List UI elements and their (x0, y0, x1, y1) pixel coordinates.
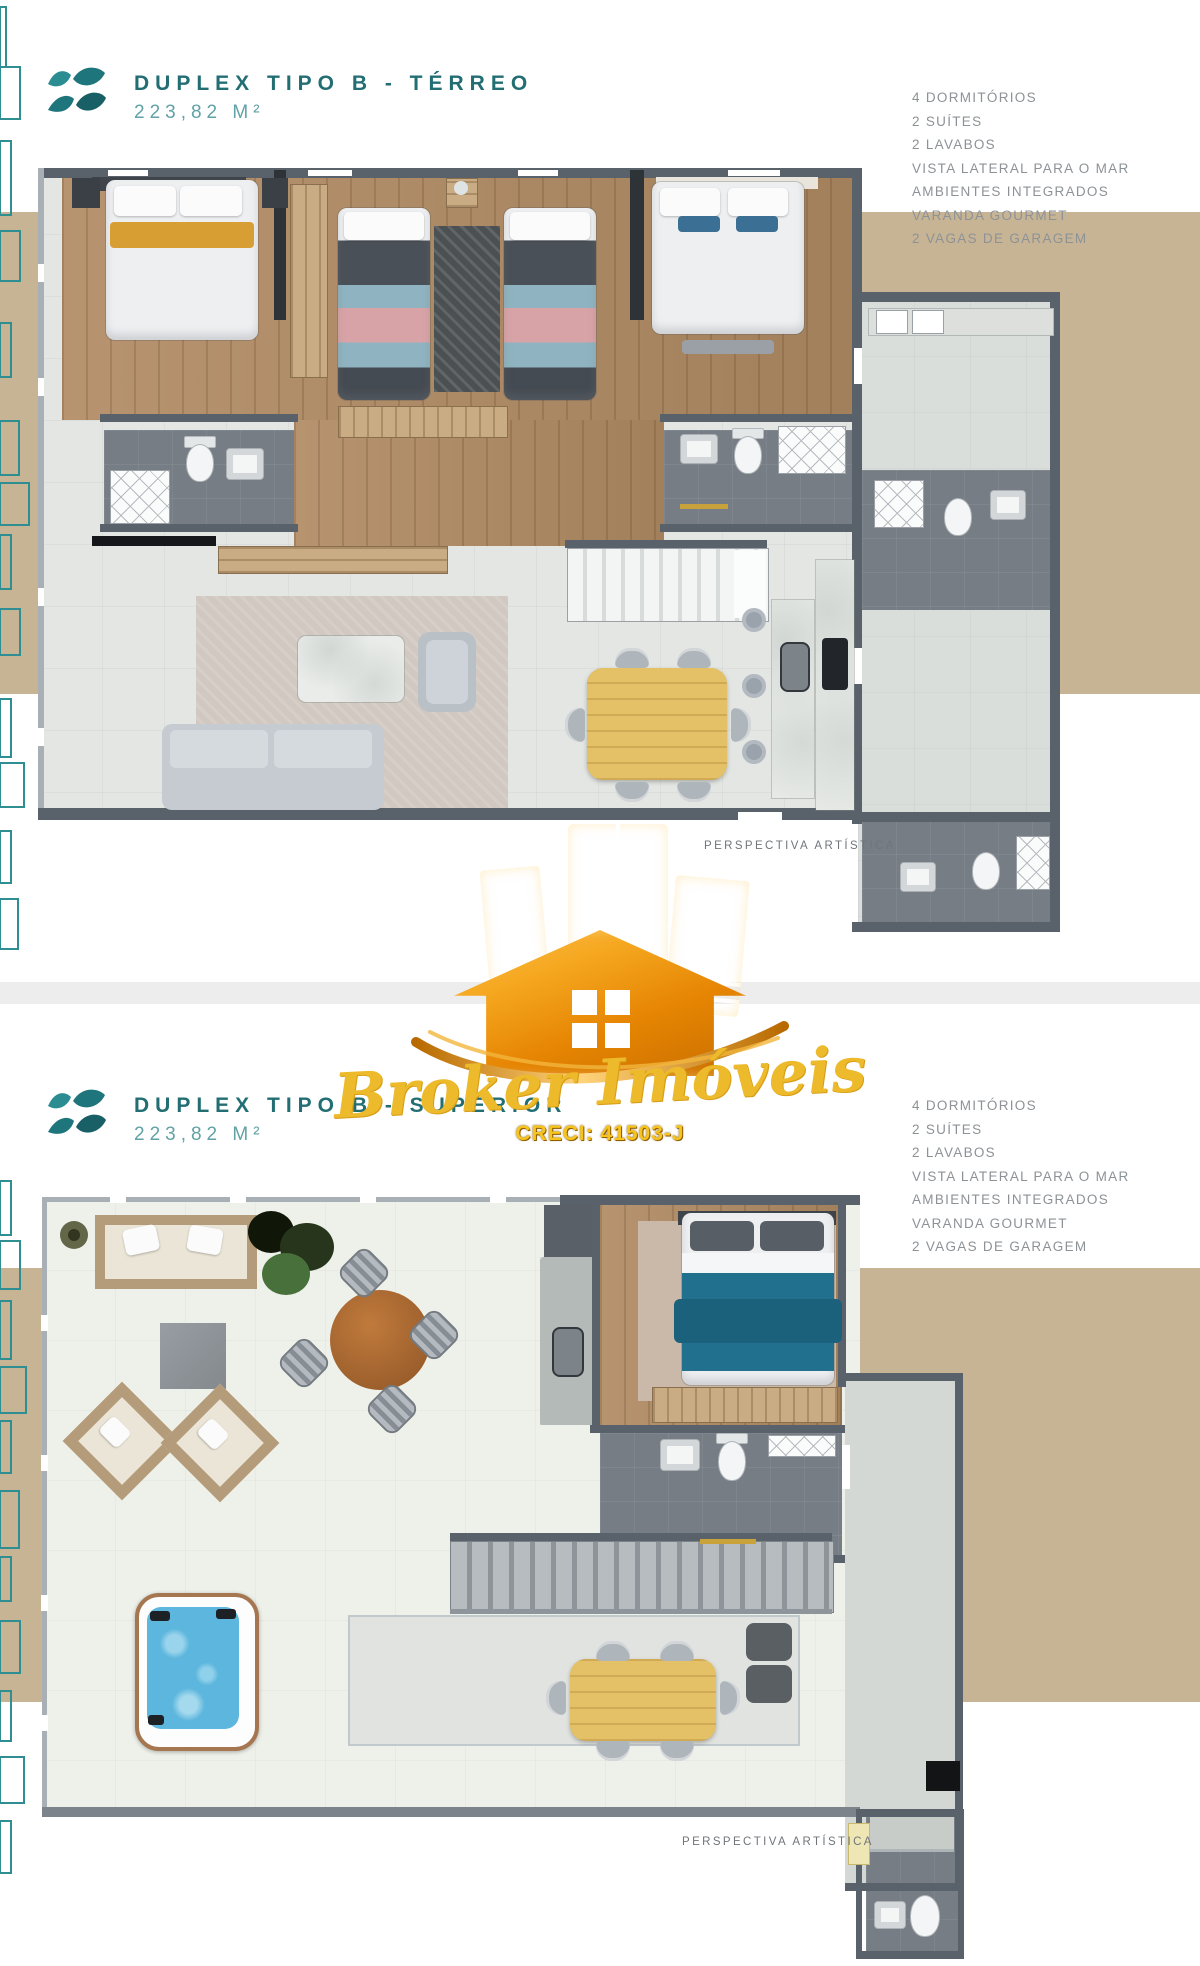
pillow (690, 1221, 754, 1251)
section-divider (0, 982, 1200, 1004)
wall (852, 292, 1060, 302)
sofa-cushion (274, 730, 372, 768)
deco-rect (0, 608, 21, 656)
window (38, 378, 44, 396)
wall (852, 922, 1060, 932)
wave-logo-icon (46, 64, 106, 118)
wall (560, 1195, 860, 1205)
feature-item: 2 SUÍTES (912, 114, 1130, 129)
jacuzzi-water (147, 1607, 239, 1729)
toilet (718, 1441, 746, 1481)
shower-tray (870, 1817, 954, 1849)
plan2-caption: PERSPECTIVA ARTÍSTICA (682, 1836, 874, 1848)
decor (76, 1115, 106, 1133)
window (41, 1715, 48, 1731)
deco-rect (0, 1620, 21, 1674)
sink (680, 434, 718, 464)
deco-rect (0, 1366, 27, 1414)
toilet (910, 1895, 940, 1937)
decor (605, 1023, 630, 1048)
decor (572, 1023, 597, 1048)
lamp (454, 181, 468, 195)
wall (450, 1533, 832, 1541)
plan1-caption: PERSPECTIVA ARTÍSTICA (704, 840, 896, 852)
toilet (972, 852, 1000, 890)
deco-rect (0, 830, 12, 884)
window (490, 1196, 506, 1203)
sheet (682, 1253, 834, 1273)
towel-rail (680, 504, 728, 509)
deco-rect (0, 1690, 12, 1742)
wall (860, 1951, 964, 1959)
tv-console (218, 546, 448, 574)
dining-chair (565, 708, 585, 742)
feature-item: 2 VAGAS DE GARAGEM (912, 1239, 1130, 1254)
window (728, 170, 780, 176)
dining-chair (677, 648, 711, 668)
pillow (660, 188, 720, 216)
wall (838, 1195, 846, 1387)
decor (48, 71, 71, 86)
dining-chair (596, 1641, 630, 1661)
wall (100, 524, 298, 532)
door (854, 648, 862, 684)
wall (860, 1809, 964, 1817)
feature-item: 2 LAVABOS (912, 137, 1130, 152)
armchair-cushion (426, 640, 468, 704)
deco-rect (0, 322, 12, 378)
wicker-sofa (95, 1215, 257, 1289)
dining-table (570, 1659, 716, 1741)
feature-item: VARANDA GOURMET (912, 208, 1130, 223)
bar-stool (742, 740, 766, 764)
chair (746, 1665, 792, 1703)
feature-item: VARANDA GOURMET (912, 1216, 1130, 1231)
toilet (734, 436, 762, 474)
deco-rect (0, 1820, 12, 1874)
bar-stool (742, 674, 766, 698)
section2-features: 4 DORMITÓRIOS 2 SUÍTES 2 LAVABOS VISTA L… (912, 1098, 1130, 1263)
sofa-cushion (170, 730, 268, 768)
wall (660, 414, 862, 422)
section1-title: DUPLEX TIPO B - TÉRREO (134, 72, 533, 96)
pillow (728, 188, 788, 216)
decor (410, 1008, 790, 1092)
floor-plan-terreo (38, 168, 1090, 933)
wall (630, 170, 644, 320)
pillow (180, 186, 242, 216)
deco-rect (0, 698, 12, 758)
feature-item: 4 DORMITÓRIOS (912, 90, 1130, 105)
hall-floor (294, 420, 664, 546)
tv-wall (92, 536, 216, 546)
jacuzzi-pad (150, 1611, 170, 1621)
deco-rect (0, 140, 12, 216)
deco-rect (0, 482, 30, 526)
deco-rect (0, 1420, 12, 1474)
dining-chair (546, 1681, 566, 1715)
wall (450, 1609, 832, 1614)
window (308, 170, 352, 176)
sink (900, 862, 936, 892)
deco-rect (0, 6, 7, 68)
floor-plan-superior (30, 1195, 965, 1965)
wardrobe (290, 184, 328, 378)
cooktop (822, 638, 848, 690)
jacuzzi-pad (148, 1715, 164, 1725)
window (110, 1196, 126, 1203)
coffee-table (298, 636, 404, 702)
deco-rect (0, 1490, 20, 1549)
gold-swoosh-icon (410, 1008, 790, 1092)
window (518, 170, 558, 176)
door (842, 1445, 850, 1489)
feature-item: VISTA LATERAL PARA O MAR (912, 1169, 1130, 1184)
ottoman (160, 1323, 226, 1389)
pillow (186, 1224, 224, 1256)
wardrobe (652, 1387, 838, 1423)
feature-item: 4 DORMITÓRIOS (912, 1098, 1130, 1113)
window (38, 728, 44, 746)
shower-glass (870, 1849, 954, 1852)
section1-area: 223,82 M² (134, 102, 265, 124)
window (360, 1196, 376, 1203)
decor (48, 96, 74, 112)
plant (68, 1229, 80, 1241)
blanket (674, 1299, 842, 1343)
door (738, 812, 782, 822)
shower (110, 470, 170, 524)
wall (852, 812, 1060, 822)
decor (73, 68, 105, 86)
sink (226, 448, 264, 480)
decor (46, 1086, 106, 1140)
stairs (450, 1541, 834, 1613)
window (108, 170, 148, 176)
pillow (510, 212, 590, 240)
window (230, 1196, 246, 1203)
deco-rect (0, 66, 21, 120)
pillow (114, 186, 176, 216)
window (38, 264, 44, 282)
deco-rect (0, 230, 21, 282)
towel-rail (700, 1539, 756, 1544)
window (41, 1315, 48, 1331)
door (854, 348, 862, 384)
shower (768, 1435, 836, 1457)
decor (73, 1090, 105, 1108)
dining-table (587, 668, 727, 780)
window (41, 1595, 48, 1611)
window (38, 588, 44, 606)
decor (48, 1118, 74, 1134)
blanket (110, 222, 254, 248)
sink (990, 490, 1026, 520)
toilet (944, 498, 972, 536)
sink (552, 1327, 584, 1377)
kitchen-island (772, 600, 814, 798)
chair (746, 1623, 792, 1661)
toilet (186, 444, 214, 482)
pillow (678, 216, 720, 232)
jacuzzi-pad (216, 1609, 236, 1619)
wall (100, 414, 298, 422)
deco-rect (0, 534, 12, 590)
black-cabinet (926, 1761, 960, 1791)
decor (46, 64, 106, 118)
wall (845, 1883, 963, 1891)
wall (660, 524, 862, 532)
washer (876, 310, 908, 334)
decor (416, 1026, 784, 1079)
dining-chair (615, 648, 649, 668)
window (41, 1455, 48, 1471)
wall (958, 1809, 964, 1959)
nightstand (72, 178, 100, 208)
wall (565, 540, 767, 548)
decor (430, 1032, 778, 1067)
pillow (736, 216, 778, 232)
bar-stool (742, 608, 766, 632)
deco-rect (0, 420, 20, 476)
bench (682, 340, 774, 354)
pillow (760, 1221, 824, 1251)
pillow (344, 212, 424, 240)
section2-title: DUPLEX TIPO B - SUPERIOR (134, 1094, 567, 1118)
feature-item: VISTA LATERAL PARA O MAR (912, 161, 1130, 176)
decor (76, 93, 106, 111)
rug (434, 226, 500, 392)
deco-rect (0, 1240, 21, 1290)
wall (845, 1373, 963, 1381)
deco-rect (0, 1180, 12, 1236)
plant (262, 1253, 310, 1295)
deco-rect (0, 1556, 12, 1602)
shower (1016, 836, 1050, 890)
feature-item: 2 SUÍTES (912, 1122, 1130, 1137)
section2-area: 223,82 M² (134, 1124, 265, 1146)
wall (590, 1425, 845, 1433)
kitchen-sink (780, 642, 810, 692)
deco-rect (0, 1756, 25, 1804)
watermark-creci: CRECI: 41503-J (320, 1122, 880, 1146)
nightstand (262, 178, 288, 208)
shower (874, 480, 924, 528)
feature-item: 2 VAGAS DE GARAGEM (912, 231, 1130, 246)
feature-item: 2 LAVABOS (912, 1145, 1130, 1160)
sink (874, 1901, 906, 1929)
feature-item: AMBIENTES INTEGRADOS (912, 184, 1130, 199)
sink (660, 1439, 700, 1471)
decor (48, 1093, 71, 1108)
wall (1050, 292, 1060, 932)
section1-features: 4 DORMITÓRIOS 2 SUÍTES 2 LAVABOS VISTA L… (912, 90, 1130, 255)
wall (42, 1807, 860, 1817)
dining-chair (660, 1641, 694, 1661)
deco-rect (0, 762, 25, 808)
deco-rect (0, 1300, 12, 1360)
wave-logo-icon (46, 1086, 106, 1140)
barbecue-cabinet (544, 1205, 592, 1257)
deco-rect (0, 898, 19, 950)
feature-item: AMBIENTES INTEGRADOS (912, 1192, 1130, 1207)
shower (778, 426, 846, 474)
watermark-brand: Broker Imóveis (299, 1030, 902, 1134)
dresser (338, 406, 508, 438)
washer (912, 310, 944, 334)
